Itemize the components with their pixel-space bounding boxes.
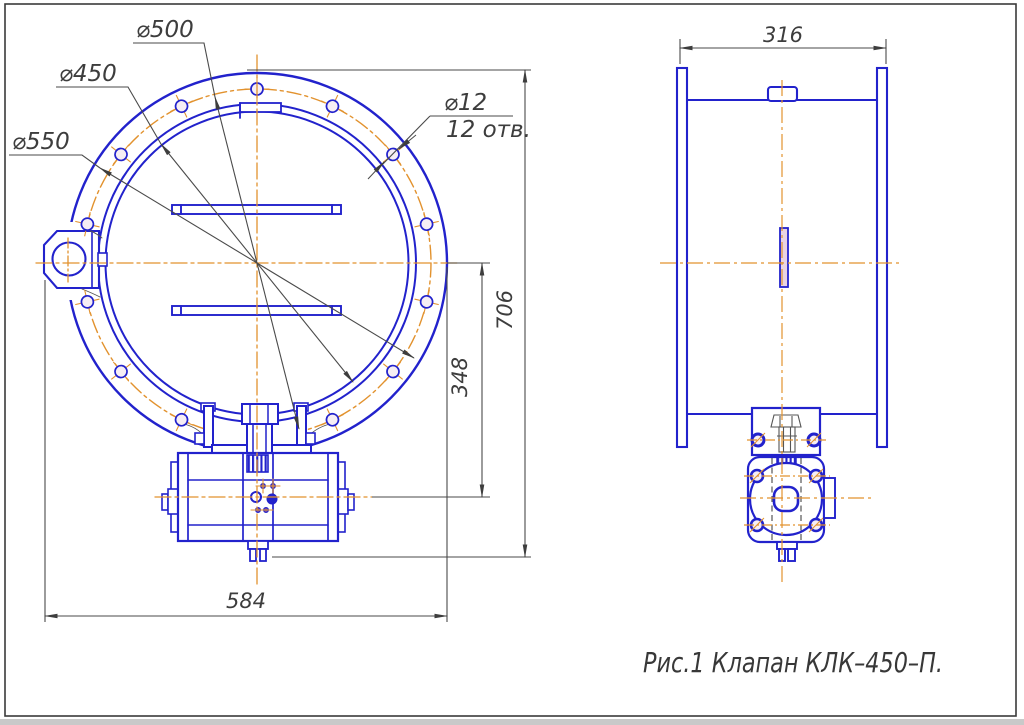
- bottom-fitting: [250, 549, 256, 561]
- sensor-boss: [44, 231, 107, 288]
- label-d550: ⌀550: [12, 129, 70, 155]
- pneumatic-actuator-front: [162, 453, 354, 561]
- bracket-bolt: [195, 433, 204, 444]
- bolt-hole: [412, 287, 441, 316]
- mounting-bracket: [195, 403, 315, 453]
- actuator-side: [748, 455, 835, 561]
- disc-edge-slot: [780, 228, 788, 287]
- technical-drawing: ⌀500 ⌀450 ⌀550 ⌀12 12 отв. 584 316 706 3…: [0, 0, 1024, 725]
- shaft-socket: [774, 487, 798, 511]
- label-d12: ⌀12: [444, 90, 487, 116]
- dim-text-706: 706: [493, 290, 517, 330]
- flange-right: [877, 68, 887, 447]
- annotations: ⌀500 ⌀450 ⌀550 ⌀12 12 отв. 584 316 706 3…: [12, 17, 943, 679]
- figure-caption: Рис.1 Клапан КЛК–450–П.: [643, 646, 943, 679]
- front-view: [36, 55, 460, 587]
- valve-stem: [247, 424, 272, 453]
- pilot-hole: [267, 494, 277, 504]
- bottom-fitting-side: [777, 542, 797, 549]
- bottom-fitting: [260, 549, 266, 561]
- seat-notch: [240, 103, 281, 118]
- air-port-left: [168, 489, 178, 514]
- air-port-right: [338, 489, 348, 514]
- stem-hex-boss: [242, 404, 278, 424]
- side-view: [660, 68, 903, 584]
- label-d500: ⌀500: [136, 17, 194, 43]
- drawing-border: [5, 4, 1016, 716]
- bracket-bolt: [306, 433, 315, 444]
- scan-edge: [0, 719, 1024, 725]
- drawing-page: ⌀500 ⌀450 ⌀550 ⌀12 12 отв. 584 316 706 3…: [0, 0, 1024, 725]
- dim-text-584: 584: [226, 589, 266, 613]
- dim-text-316: 316: [763, 23, 803, 47]
- bottom-fitting-side: [788, 549, 795, 561]
- dim-text-348: 348: [448, 357, 472, 397]
- label-holes-count: 12 отв.: [446, 117, 531, 143]
- flange-left: [677, 68, 687, 447]
- bottom-fitting: [248, 541, 268, 549]
- label-d450: ⌀450: [59, 61, 117, 87]
- bolt-hole: [412, 210, 441, 239]
